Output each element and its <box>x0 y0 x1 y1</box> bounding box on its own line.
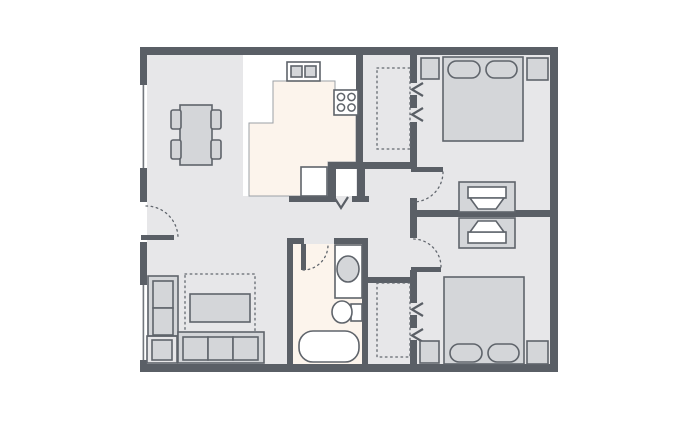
nightstand <box>420 341 439 363</box>
loveseat-cushion <box>153 308 173 335</box>
stove <box>334 90 358 115</box>
entry-door-leaf <box>141 235 174 240</box>
dining-table <box>180 105 212 165</box>
wall-bathroom-left <box>287 238 293 366</box>
dining-chair <box>211 140 221 159</box>
window-lower-left <box>143 285 145 360</box>
pillow <box>486 61 517 78</box>
wall-bathroom-right <box>362 238 368 366</box>
bedroom-1-door-leaf <box>411 167 443 172</box>
wall-bedrooms-seg6 <box>410 315 417 328</box>
dining-chair <box>171 140 181 159</box>
nightstand <box>527 341 548 364</box>
toilet-bowl <box>332 301 352 323</box>
wall-kitchen-corner <box>328 169 336 197</box>
floor-plan-canvas: Two-bedroom apartment floor plan <box>0 0 697 445</box>
wall-bedrooms-seg5 <box>410 270 417 303</box>
dining-chair <box>211 110 221 129</box>
coffee-table <box>190 294 250 322</box>
pillow <box>488 344 519 362</box>
wall-bedrooms-seg4 <box>410 198 417 238</box>
sofa-cushion <box>208 337 233 360</box>
wall-exterior-left-seg4 <box>140 360 147 372</box>
tv-screen <box>468 232 506 243</box>
wall-exterior-right <box>550 47 558 372</box>
wall-kitchen-closet-bottom <box>328 162 417 169</box>
tv-screen <box>468 187 506 198</box>
bedroom-2-door-leaf <box>411 267 441 272</box>
stove-burner <box>348 93 355 100</box>
vanity-sink-basin <box>337 256 359 282</box>
pillow <box>448 61 480 78</box>
stove-burner <box>337 93 344 100</box>
wall-pantry-stub-cap <box>352 196 369 202</box>
stove-burner <box>348 104 355 111</box>
pillow <box>450 344 482 362</box>
wall-kitchen-bottom <box>289 196 336 202</box>
sink-basin <box>291 66 302 77</box>
kitchen-appliance <box>301 167 327 196</box>
sofa-cushion <box>233 337 258 360</box>
wall-bedrooms-seg7 <box>410 340 417 372</box>
bathroom-door-leaf <box>301 244 306 270</box>
wall-exterior-bottom <box>140 364 558 372</box>
wall-bathroom-top-left <box>287 238 304 244</box>
wall-exterior-left-seg3 <box>140 242 147 285</box>
nightstand <box>527 58 548 80</box>
wall-closet2-top <box>362 277 417 283</box>
sink-basin <box>305 66 316 77</box>
wall-bedrooms-seg3 <box>410 122 417 162</box>
loveseat-cushion <box>153 281 173 308</box>
dining-chair <box>171 110 181 129</box>
bathtub <box>299 331 359 362</box>
wall-exterior-left-seg1 <box>140 47 147 85</box>
wall-exterior-left-seg2 <box>140 168 147 202</box>
end-table-top <box>152 340 172 360</box>
nightstand <box>421 58 439 79</box>
sofa-cushion <box>183 337 208 360</box>
wall-exterior-top <box>140 47 558 55</box>
window-upper-left <box>143 85 145 168</box>
wall-bedrooms-seg2 <box>410 95 417 108</box>
wall-pantry-stub <box>357 169 365 196</box>
floor-plan <box>0 0 697 445</box>
stove-burner <box>337 104 344 111</box>
wall-bedrooms-seg1 <box>410 55 417 83</box>
